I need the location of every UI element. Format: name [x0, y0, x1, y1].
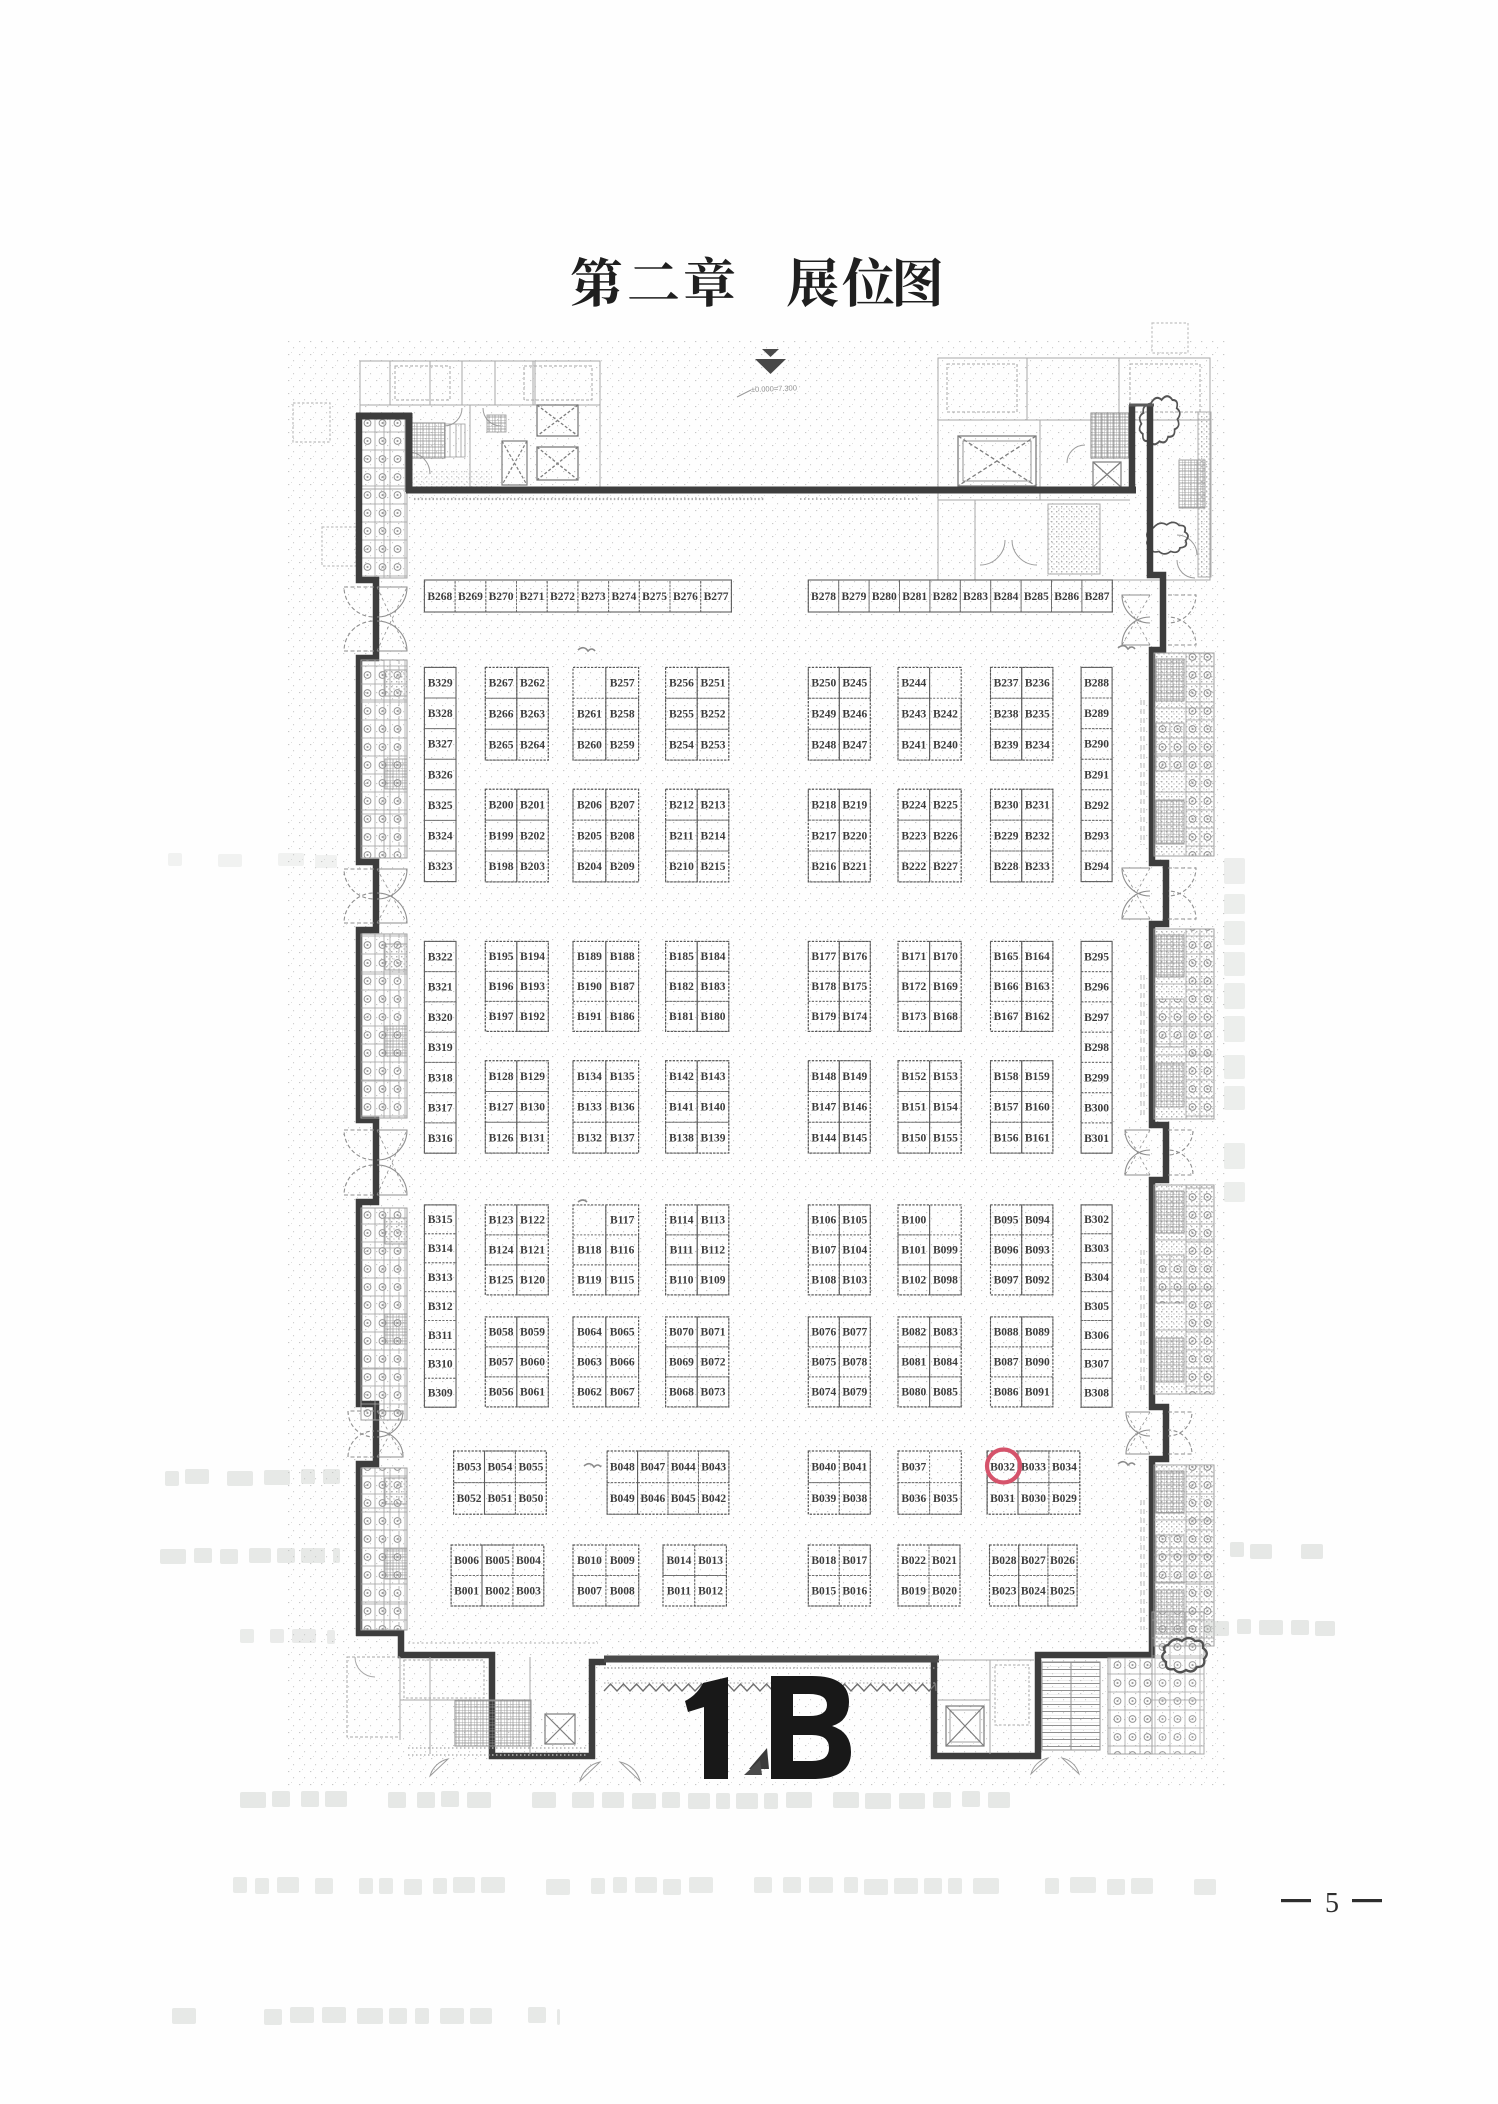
svg-text:B298: B298: [1084, 1042, 1109, 1054]
svg-text:B249: B249: [811, 709, 836, 721]
svg-text:B242: B242: [933, 709, 958, 721]
svg-text:B297: B297: [1084, 1012, 1109, 1024]
svg-text:B291: B291: [1084, 769, 1109, 781]
svg-text:B035: B035: [933, 1493, 958, 1505]
svg-text:B209: B209: [610, 861, 635, 873]
svg-text:B137: B137: [610, 1133, 635, 1145]
svg-text:B102: B102: [901, 1275, 926, 1287]
svg-text:B304: B304: [1084, 1272, 1109, 1284]
svg-text:B165: B165: [994, 951, 1019, 963]
svg-text:B050: B050: [518, 1493, 543, 1505]
svg-text:B052: B052: [457, 1493, 482, 1505]
svg-text:B020: B020: [932, 1586, 957, 1598]
svg-text:B147: B147: [811, 1102, 836, 1114]
svg-text:B188: B188: [610, 951, 635, 963]
svg-text:B315: B315: [428, 1214, 453, 1226]
svg-text:B066: B066: [610, 1357, 635, 1369]
svg-text:B197: B197: [489, 1011, 514, 1023]
svg-text:B135: B135: [610, 1071, 635, 1083]
svg-text:B283: B283: [963, 591, 988, 603]
svg-text:B279: B279: [841, 591, 866, 603]
svg-text:B158: B158: [994, 1071, 1019, 1083]
svg-text:B175: B175: [842, 981, 867, 993]
svg-text:B219: B219: [842, 800, 867, 812]
svg-text:B046: B046: [640, 1493, 665, 1505]
svg-text:B288: B288: [1084, 678, 1109, 690]
svg-text:B230: B230: [994, 800, 1019, 812]
svg-text:B062: B062: [577, 1387, 602, 1399]
svg-text:B324: B324: [428, 831, 453, 843]
svg-text:B084: B084: [933, 1357, 958, 1369]
svg-text:B277: B277: [704, 591, 729, 603]
svg-text:B212: B212: [669, 800, 694, 812]
svg-text:B193: B193: [520, 981, 545, 993]
svg-text:B199: B199: [489, 830, 514, 842]
svg-text:B002: B002: [485, 1586, 510, 1598]
svg-text:B087: B087: [994, 1357, 1019, 1369]
svg-text:B229: B229: [994, 830, 1019, 842]
svg-text:B142: B142: [669, 1071, 694, 1083]
svg-text:B326: B326: [428, 769, 453, 781]
svg-text:B080: B080: [901, 1387, 926, 1399]
svg-text:B207: B207: [610, 800, 635, 812]
svg-text:B096: B096: [994, 1245, 1019, 1257]
svg-text:B257: B257: [610, 678, 635, 690]
svg-text:B162: B162: [1025, 1011, 1050, 1023]
svg-text:B266: B266: [489, 709, 514, 721]
svg-text:B191: B191: [577, 1011, 602, 1023]
svg-text:B144: B144: [811, 1133, 836, 1145]
svg-text:B076: B076: [811, 1327, 836, 1339]
svg-text:B178: B178: [811, 981, 836, 993]
svg-text:B213: B213: [701, 800, 726, 812]
svg-text:B131: B131: [520, 1133, 545, 1145]
svg-text:B005: B005: [485, 1555, 510, 1567]
svg-text:B010: B010: [577, 1555, 602, 1567]
svg-text:B092: B092: [1025, 1275, 1050, 1287]
svg-text:B256: B256: [669, 678, 694, 690]
svg-text:B041: B041: [842, 1462, 867, 1474]
svg-text:B252: B252: [701, 709, 726, 721]
svg-text:B072: B072: [701, 1357, 726, 1369]
svg-text:B138: B138: [669, 1133, 694, 1145]
svg-text:B303: B303: [1084, 1243, 1109, 1255]
svg-text:B044: B044: [671, 1462, 696, 1474]
svg-text:B286: B286: [1054, 591, 1079, 603]
svg-text:B309: B309: [428, 1388, 453, 1400]
svg-text:B296: B296: [1084, 982, 1109, 994]
svg-text:B151: B151: [901, 1102, 926, 1114]
svg-text:B308: B308: [1084, 1388, 1109, 1400]
svg-text:B032: B032: [990, 1462, 1015, 1474]
svg-text:B206: B206: [577, 800, 602, 812]
svg-text:B003: B003: [516, 1586, 541, 1598]
svg-text:B225: B225: [933, 800, 958, 812]
svg-text:B083: B083: [933, 1327, 958, 1339]
svg-text:B125: B125: [489, 1275, 514, 1287]
svg-text:B262: B262: [520, 678, 545, 690]
svg-text:B164: B164: [1025, 951, 1050, 963]
svg-text:B101: B101: [901, 1245, 926, 1257]
svg-text:B274: B274: [611, 591, 636, 603]
svg-text:B314: B314: [428, 1243, 453, 1255]
svg-text:B176: B176: [842, 951, 867, 963]
svg-text:B016: B016: [842, 1586, 867, 1598]
svg-text:B251: B251: [701, 678, 726, 690]
svg-text:B055: B055: [518, 1462, 543, 1474]
svg-text:B122: B122: [520, 1215, 545, 1227]
svg-text:B117: B117: [610, 1215, 635, 1227]
svg-text:B056: B056: [489, 1387, 514, 1399]
svg-text:B149: B149: [842, 1071, 867, 1083]
svg-text:B269: B269: [458, 591, 483, 603]
svg-text:B246: B246: [842, 709, 867, 721]
svg-text:B120: B120: [520, 1275, 545, 1287]
svg-text:B293: B293: [1084, 831, 1109, 843]
svg-text:B311: B311: [428, 1330, 453, 1342]
svg-text:B065: B065: [610, 1327, 635, 1339]
svg-text:B109: B109: [701, 1275, 726, 1287]
svg-text:B153: B153: [933, 1071, 958, 1083]
svg-text:B011: B011: [667, 1586, 692, 1598]
svg-text:B089: B089: [1025, 1327, 1050, 1339]
svg-text:B064: B064: [577, 1327, 602, 1339]
svg-text:B255: B255: [669, 709, 694, 721]
svg-text:B019: B019: [901, 1586, 926, 1598]
svg-text:B232: B232: [1025, 830, 1050, 842]
svg-text:B154: B154: [933, 1102, 958, 1114]
svg-text:B021: B021: [932, 1555, 957, 1567]
svg-text:B231: B231: [1025, 800, 1050, 812]
svg-text:B095: B095: [994, 1215, 1019, 1227]
svg-text:B073: B073: [701, 1387, 726, 1399]
svg-text:B128: B128: [489, 1071, 514, 1083]
svg-text:B300: B300: [1084, 1103, 1109, 1115]
svg-text:B201: B201: [520, 800, 545, 812]
svg-text:B105: B105: [842, 1215, 867, 1227]
svg-text:B271: B271: [519, 591, 544, 603]
svg-text:B049: B049: [610, 1493, 635, 1505]
svg-text:B028: B028: [992, 1555, 1017, 1567]
svg-text:B292: B292: [1084, 800, 1109, 812]
svg-text:B243: B243: [901, 709, 926, 721]
svg-text:B295: B295: [1084, 951, 1109, 963]
svg-text:B088: B088: [994, 1327, 1019, 1339]
svg-text:B223: B223: [901, 830, 926, 842]
svg-text:B124: B124: [489, 1245, 514, 1257]
svg-text:B166: B166: [994, 981, 1019, 993]
svg-text:B082: B082: [901, 1327, 926, 1339]
svg-text:B259: B259: [610, 739, 635, 751]
svg-text:B112: B112: [701, 1245, 726, 1257]
svg-text:B323: B323: [428, 861, 453, 873]
svg-text:B187: B187: [610, 981, 635, 993]
svg-text:B090: B090: [1025, 1357, 1050, 1369]
svg-text:B107: B107: [811, 1245, 836, 1257]
svg-text:B183: B183: [701, 981, 726, 993]
svg-text:B156: B156: [994, 1133, 1019, 1145]
svg-text:B053: B053: [457, 1462, 482, 1474]
svg-text:B100: B100: [901, 1215, 926, 1227]
svg-text:B042: B042: [701, 1493, 726, 1505]
svg-text:B211: B211: [669, 830, 694, 842]
svg-text:B060: B060: [520, 1357, 545, 1369]
svg-text:B169: B169: [933, 981, 958, 993]
svg-text:B033: B033: [1021, 1462, 1046, 1474]
svg-text:B272: B272: [550, 591, 575, 603]
svg-text:B275: B275: [642, 591, 667, 603]
svg-text:B103: B103: [842, 1275, 867, 1287]
svg-text:B263: B263: [520, 709, 545, 721]
svg-text:B063: B063: [577, 1357, 602, 1369]
svg-text:B320: B320: [428, 1012, 453, 1024]
svg-text:B025: B025: [1050, 1586, 1075, 1598]
svg-text:B161: B161: [1025, 1133, 1050, 1145]
svg-text:B037: B037: [901, 1462, 926, 1474]
svg-text:B245: B245: [842, 678, 867, 690]
svg-text:B202: B202: [520, 830, 545, 842]
svg-text:B075: B075: [811, 1357, 836, 1369]
svg-text:B237: B237: [994, 678, 1019, 690]
svg-text:B013: B013: [698, 1555, 723, 1567]
svg-text:B285: B285: [1024, 591, 1049, 603]
svg-text:B329: B329: [428, 678, 453, 690]
svg-text:B014: B014: [666, 1555, 691, 1567]
svg-text:B145: B145: [842, 1133, 867, 1145]
svg-text:B004: B004: [516, 1555, 541, 1567]
svg-text:B047: B047: [640, 1462, 665, 1474]
svg-text:B316: B316: [428, 1133, 453, 1145]
svg-text:B071: B071: [701, 1327, 726, 1339]
svg-text:B203: B203: [520, 861, 545, 873]
svg-text:B327: B327: [428, 739, 453, 751]
svg-text:B068: B068: [669, 1387, 694, 1399]
svg-text:B267: B267: [489, 678, 514, 690]
svg-text:B200: B200: [489, 800, 514, 812]
svg-text:B299: B299: [1084, 1072, 1109, 1084]
svg-text:B027: B027: [1021, 1555, 1046, 1567]
svg-text:5: 5: [1325, 1888, 1339, 1919]
svg-text:B110: B110: [669, 1275, 694, 1287]
svg-text:B116: B116: [610, 1245, 635, 1257]
svg-text:B190: B190: [577, 981, 602, 993]
svg-text:B325: B325: [428, 800, 453, 812]
svg-text:B079: B079: [842, 1387, 867, 1399]
svg-text:B009: B009: [610, 1555, 635, 1567]
svg-text:B111: B111: [670, 1245, 694, 1257]
svg-text:B244: B244: [901, 678, 926, 690]
svg-text:B160: B160: [1025, 1102, 1050, 1114]
svg-text:B196: B196: [489, 981, 514, 993]
svg-text:B155: B155: [933, 1133, 958, 1145]
svg-text:B254: B254: [669, 739, 694, 751]
svg-text:B253: B253: [701, 739, 726, 751]
svg-text:B218: B218: [811, 800, 836, 812]
svg-text:B024: B024: [1021, 1586, 1046, 1598]
svg-text:B319: B319: [428, 1042, 453, 1054]
svg-text:B276: B276: [673, 591, 698, 603]
svg-text:B289: B289: [1084, 708, 1109, 720]
svg-text:B093: B093: [1025, 1245, 1050, 1257]
svg-text:B222: B222: [901, 861, 926, 873]
svg-text:B221: B221: [842, 861, 867, 873]
svg-text:B091: B091: [1025, 1387, 1050, 1399]
svg-text:B264: B264: [520, 739, 545, 751]
svg-text:B250: B250: [811, 678, 836, 690]
svg-text:B077: B077: [842, 1327, 867, 1339]
svg-text:B312: B312: [428, 1301, 453, 1313]
svg-text:B216: B216: [811, 861, 836, 873]
svg-text:B012: B012: [698, 1586, 723, 1598]
svg-text:B141: B141: [669, 1102, 694, 1114]
svg-text:B067: B067: [610, 1387, 635, 1399]
svg-text:B273: B273: [581, 591, 606, 603]
svg-text:B307: B307: [1084, 1359, 1109, 1371]
svg-text:B294: B294: [1084, 861, 1109, 873]
svg-text:B260: B260: [577, 739, 602, 751]
svg-text:B094: B094: [1025, 1215, 1050, 1227]
svg-text:B086: B086: [994, 1387, 1019, 1399]
svg-text:B099: B099: [933, 1245, 958, 1257]
svg-text:B129: B129: [520, 1071, 545, 1083]
svg-text:B172: B172: [901, 981, 926, 993]
svg-text:B241: B241: [901, 739, 926, 751]
svg-text:B170: B170: [933, 951, 958, 963]
svg-text:B034: B034: [1052, 1462, 1077, 1474]
svg-text:B270: B270: [489, 591, 514, 603]
svg-text:B159: B159: [1025, 1071, 1050, 1083]
svg-text:B143: B143: [701, 1071, 726, 1083]
svg-text:B018: B018: [811, 1555, 836, 1567]
svg-text:B058: B058: [489, 1327, 514, 1339]
svg-text:B104: B104: [842, 1245, 867, 1257]
svg-text:B210: B210: [669, 861, 694, 873]
svg-text:B282: B282: [933, 591, 958, 603]
svg-text:B051: B051: [487, 1493, 512, 1505]
svg-text:B215: B215: [701, 861, 726, 873]
svg-text:B006: B006: [454, 1555, 479, 1567]
svg-text:B220: B220: [842, 830, 867, 842]
svg-text:B168: B168: [933, 1011, 958, 1023]
svg-text:B174: B174: [842, 1011, 867, 1023]
svg-text:B167: B167: [994, 1011, 1019, 1023]
svg-text:B157: B157: [994, 1102, 1019, 1114]
svg-text:B195: B195: [489, 951, 514, 963]
svg-text:B310: B310: [428, 1359, 453, 1371]
svg-text:B313: B313: [428, 1272, 453, 1284]
svg-text:B318: B318: [428, 1072, 453, 1084]
svg-text:B059: B059: [520, 1327, 545, 1339]
svg-text:B328: B328: [428, 708, 453, 720]
svg-text:B085: B085: [933, 1387, 958, 1399]
svg-text:B139: B139: [701, 1133, 726, 1145]
svg-text:B148: B148: [811, 1071, 836, 1083]
svg-text:B136: B136: [610, 1102, 635, 1114]
svg-text:B306: B306: [1084, 1330, 1109, 1342]
svg-text:B061: B061: [520, 1387, 545, 1399]
svg-text:B015: B015: [811, 1586, 836, 1598]
svg-text:B194: B194: [520, 951, 545, 963]
svg-text:B106: B106: [811, 1215, 836, 1227]
svg-text:B126: B126: [489, 1133, 514, 1145]
svg-text:B278: B278: [811, 591, 836, 603]
svg-text:B234: B234: [1025, 739, 1050, 751]
svg-text:B017: B017: [842, 1555, 867, 1567]
svg-text:B026: B026: [1050, 1555, 1075, 1567]
svg-text:B070: B070: [669, 1327, 694, 1339]
svg-text:B290: B290: [1084, 739, 1109, 751]
svg-text:B113: B113: [701, 1215, 726, 1227]
svg-text:B233: B233: [1025, 861, 1050, 873]
svg-text:B098: B098: [933, 1275, 958, 1287]
svg-text:B081: B081: [901, 1357, 926, 1369]
svg-text:B007: B007: [577, 1586, 602, 1598]
svg-text:B208: B208: [610, 830, 635, 842]
svg-text:B238: B238: [994, 709, 1019, 721]
svg-text:B305: B305: [1084, 1301, 1109, 1313]
svg-text:B321: B321: [428, 982, 453, 994]
svg-text:B043: B043: [701, 1462, 726, 1474]
svg-text:B130: B130: [520, 1102, 545, 1114]
svg-text:B074: B074: [811, 1387, 836, 1399]
svg-text:B177: B177: [811, 951, 836, 963]
svg-text:B031: B031: [990, 1493, 1015, 1505]
svg-text:B261: B261: [577, 709, 602, 721]
svg-text:B123: B123: [489, 1215, 514, 1227]
svg-text:B247: B247: [842, 739, 867, 751]
svg-text:B133: B133: [577, 1102, 602, 1114]
svg-text:B268: B268: [427, 591, 452, 603]
svg-text:B029: B029: [1052, 1493, 1077, 1505]
svg-text:B030: B030: [1021, 1493, 1046, 1505]
svg-text:B048: B048: [610, 1462, 635, 1474]
svg-text:B179: B179: [811, 1011, 836, 1023]
svg-text:B097: B097: [994, 1275, 1019, 1287]
svg-text:B171: B171: [901, 951, 926, 963]
svg-text:B127: B127: [489, 1102, 514, 1114]
svg-text:B184: B184: [701, 951, 726, 963]
svg-text:B280: B280: [872, 591, 897, 603]
svg-text:±0.000=7.300: ±0.000=7.300: [751, 383, 797, 394]
svg-text:B108: B108: [811, 1275, 836, 1287]
svg-text:B239: B239: [994, 739, 1019, 751]
svg-text:B236: B236: [1025, 678, 1050, 690]
svg-text:B204: B204: [577, 861, 602, 873]
svg-text:B317: B317: [428, 1103, 453, 1115]
svg-text:B301: B301: [1084, 1133, 1109, 1145]
svg-text:B146: B146: [842, 1102, 867, 1114]
svg-text:B001: B001: [454, 1586, 479, 1598]
svg-text:B036: B036: [901, 1493, 926, 1505]
svg-text:B185: B185: [669, 951, 694, 963]
svg-text:B140: B140: [701, 1102, 726, 1114]
svg-text:B054: B054: [487, 1462, 512, 1474]
svg-text:B114: B114: [669, 1215, 694, 1227]
svg-text:B205: B205: [577, 830, 602, 842]
svg-text:B258: B258: [610, 709, 635, 721]
svg-text:B039: B039: [811, 1493, 836, 1505]
svg-text:B022: B022: [901, 1555, 926, 1567]
svg-text:B224: B224: [901, 800, 926, 812]
svg-text:B228: B228: [994, 861, 1019, 873]
svg-text:B302: B302: [1084, 1214, 1109, 1226]
svg-text:B226: B226: [933, 830, 958, 842]
svg-text:B132: B132: [577, 1133, 602, 1145]
svg-text:B192: B192: [520, 1011, 545, 1023]
svg-text:B008: B008: [610, 1586, 635, 1598]
svg-text:B118: B118: [577, 1245, 602, 1257]
svg-text:B217: B217: [811, 830, 836, 842]
